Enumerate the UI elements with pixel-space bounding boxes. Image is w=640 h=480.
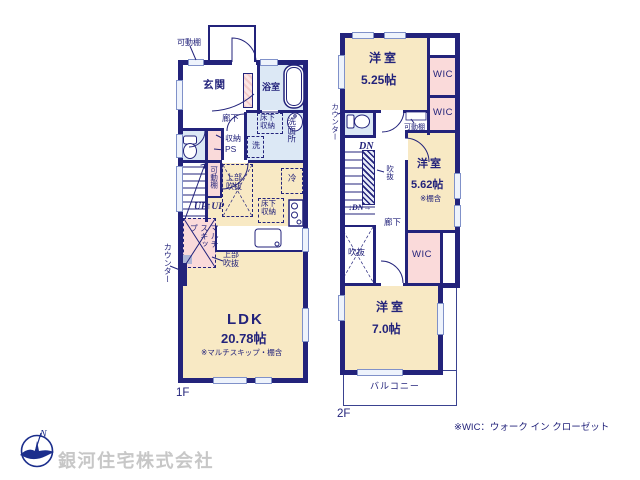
window: [260, 59, 278, 66]
door-opening: [381, 110, 403, 113]
label-wic2: WIC: [433, 108, 453, 119]
wall-segment: [220, 163, 222, 197]
label-washer: 洗: [252, 141, 260, 150]
window: [302, 308, 309, 342]
room-fill-toilet-1f: [183, 131, 205, 160]
label-balcony: バルコニー: [370, 381, 420, 391]
door-opening: [222, 160, 248, 163]
company-name: 銀河住宅株式会社: [58, 447, 214, 473]
stair-rail: [362, 150, 375, 205]
company-logo: N: [16, 424, 60, 472]
wall-segment: [427, 38, 430, 135]
wall-segment: [257, 60, 260, 114]
label-ldk-size: 20.78帖: [221, 332, 267, 347]
window: [188, 59, 204, 66]
wall-segment: [405, 230, 458, 233]
label-upper-void-2: 上部吹抜: [223, 251, 240, 269]
label-counter-2f: カウンター: [330, 103, 339, 147]
door-opening: [405, 138, 408, 160]
wall-segment: [221, 128, 224, 163]
leader-line: [377, 170, 384, 172]
wic-footnote: ※WIC：ウォーク イン クローゼット: [454, 419, 609, 433]
label-storage: 収納: [225, 134, 241, 143]
leader-line: [190, 46, 196, 60]
window: [338, 295, 345, 321]
window: [454, 173, 461, 199]
wall-segment: [340, 135, 376, 138]
label-upper-void-1: 上部吹抜: [226, 174, 243, 192]
leader-line: [411, 119, 414, 123]
label-kadoudana-strip: 可動棚: [209, 166, 218, 196]
label-ps: PS: [225, 145, 236, 155]
label-underfloor-wash: 床下収納: [260, 114, 277, 131]
door-arc-toilet-2f: [382, 110, 404, 132]
wall-segment: [440, 230, 443, 283]
label-stairs-dn: DN: [359, 141, 373, 153]
window: [176, 166, 183, 212]
shelf-kadoudana-2f: [406, 112, 426, 120]
wall-segment: [427, 55, 458, 58]
entrance-porch: [208, 25, 256, 62]
wall-segment: [455, 33, 460, 288]
window: [255, 377, 272, 384]
window: [302, 228, 309, 252]
label-bedroom3-size: 7.0帖: [372, 323, 401, 337]
wall-segment: [427, 95, 458, 98]
storage-ps-fill: [208, 131, 221, 160]
window: [352, 32, 374, 39]
label-hall-2f: 廊下: [384, 218, 401, 228]
ldk-counter: [179, 263, 187, 286]
window: [176, 134, 183, 158]
label-stairs-dn2: ↓DN→: [348, 203, 372, 212]
balcony-side-line: [456, 288, 457, 370]
label-bedroom3: 洋室: [376, 301, 406, 315]
door-opening: [381, 283, 403, 286]
plan-linework: [0, 0, 640, 480]
window: [338, 55, 345, 89]
label-void-stair: 吹抜: [385, 165, 394, 185]
label-fridge: 冷: [288, 174, 297, 184]
label-void: 吹抜: [348, 248, 365, 258]
label-bedroom1: 洋室: [369, 52, 399, 66]
label-genkan: 玄関: [203, 79, 226, 91]
label-stairs-up: UP↑UP: [194, 202, 224, 213]
logo-bird: [20, 441, 54, 459]
label-kadoudana-top: 可動棚: [177, 38, 201, 47]
label-ldk-note: ※マルチスキップ・棚含: [201, 349, 282, 358]
door-arc-bedroom3: [381, 261, 403, 283]
label-bedroom2: 洋室: [417, 158, 443, 171]
logo-letter: N: [39, 429, 48, 440]
logo-circle: [22, 436, 53, 467]
wall-segment: [373, 225, 376, 283]
label-bath: 浴室: [262, 82, 280, 92]
label-wic3: WIC: [412, 250, 432, 261]
wall-segment: [373, 110, 376, 138]
kitchen-counter-area: [215, 226, 303, 252]
wall-segment: [178, 128, 221, 131]
window: [357, 369, 403, 376]
label-washroom: 洗面所: [286, 117, 296, 157]
logo-needle: [35, 433, 41, 452]
label-bedroom2-note: ※棚含: [420, 195, 441, 204]
window: [384, 32, 406, 39]
label-multi-skip: マルチスキップ: [188, 224, 219, 254]
wall-segment: [244, 112, 247, 163]
shoe-cabinet: [243, 73, 253, 108]
wall-segment: [340, 225, 376, 227]
window: [176, 80, 183, 110]
label-bedroom1-size: 5.25帖: [361, 74, 396, 88]
label-wic1: WIC: [433, 70, 453, 81]
label-underfloor-kitchen: 床下収納: [261, 200, 278, 217]
floor-label-1f: 1F: [176, 387, 189, 400]
label-hall-1f: 廊下: [222, 114, 239, 124]
label-ldk: LDK: [227, 311, 264, 328]
label-counter-1f: カウンター: [163, 243, 172, 291]
window: [437, 303, 444, 335]
floor-label-2f: 2F: [337, 408, 350, 421]
wall-segment: [205, 128, 208, 163]
label-kadoudana-2f: 可動棚: [404, 124, 425, 132]
window: [454, 205, 461, 227]
floorplan-canvas: 可動棚 玄関 浴室 床下収納 洗面所 洗 廊下 収納 PS 可動棚 上部吹抜 U…: [0, 0, 640, 480]
wall-segment: [207, 196, 222, 198]
room-fill-toilet-2f: [345, 113, 373, 135]
window: [213, 377, 247, 384]
label-bedroom2-size: 5.62帖: [411, 179, 443, 192]
wall-segment: [178, 60, 232, 65]
